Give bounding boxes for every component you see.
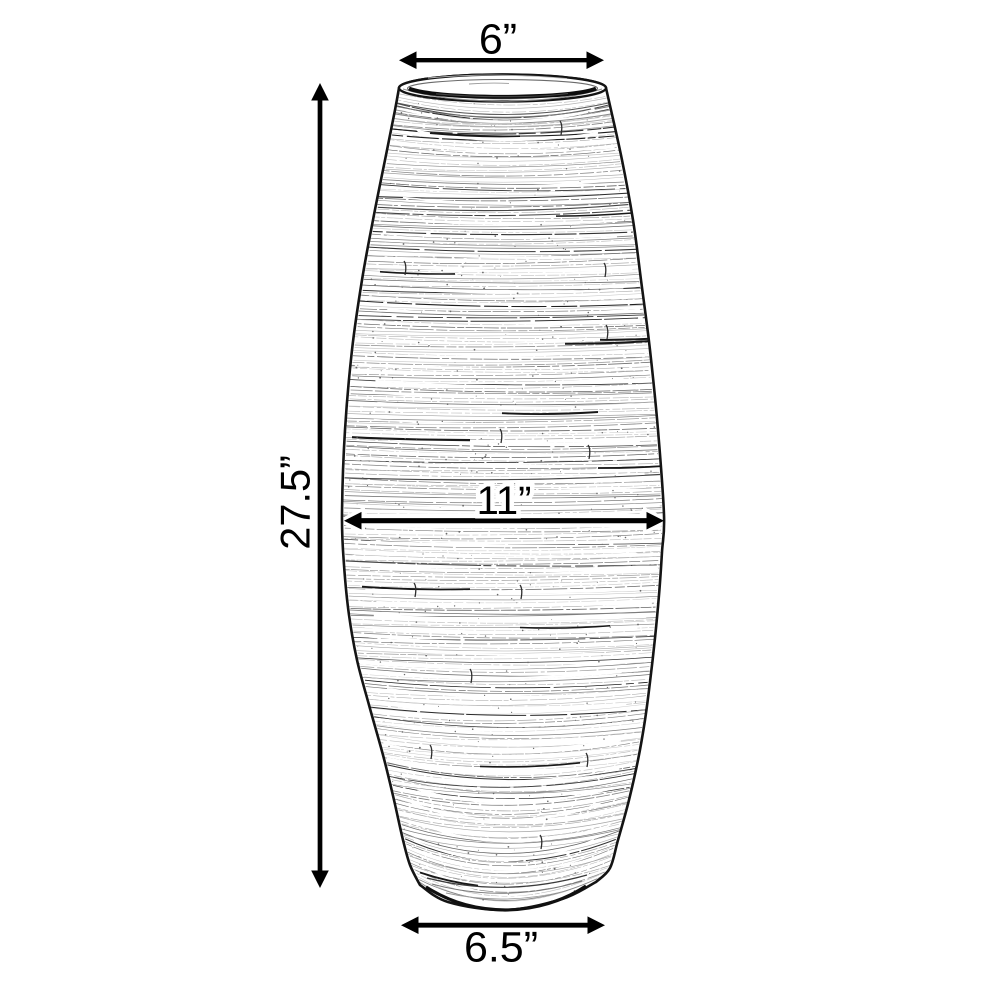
svg-text:27.5”: 27.5” [272,455,319,550]
svg-text:6.5”: 6.5” [464,924,538,972]
svg-text:6”: 6” [479,16,517,64]
svg-text:11”: 11” [477,479,532,523]
